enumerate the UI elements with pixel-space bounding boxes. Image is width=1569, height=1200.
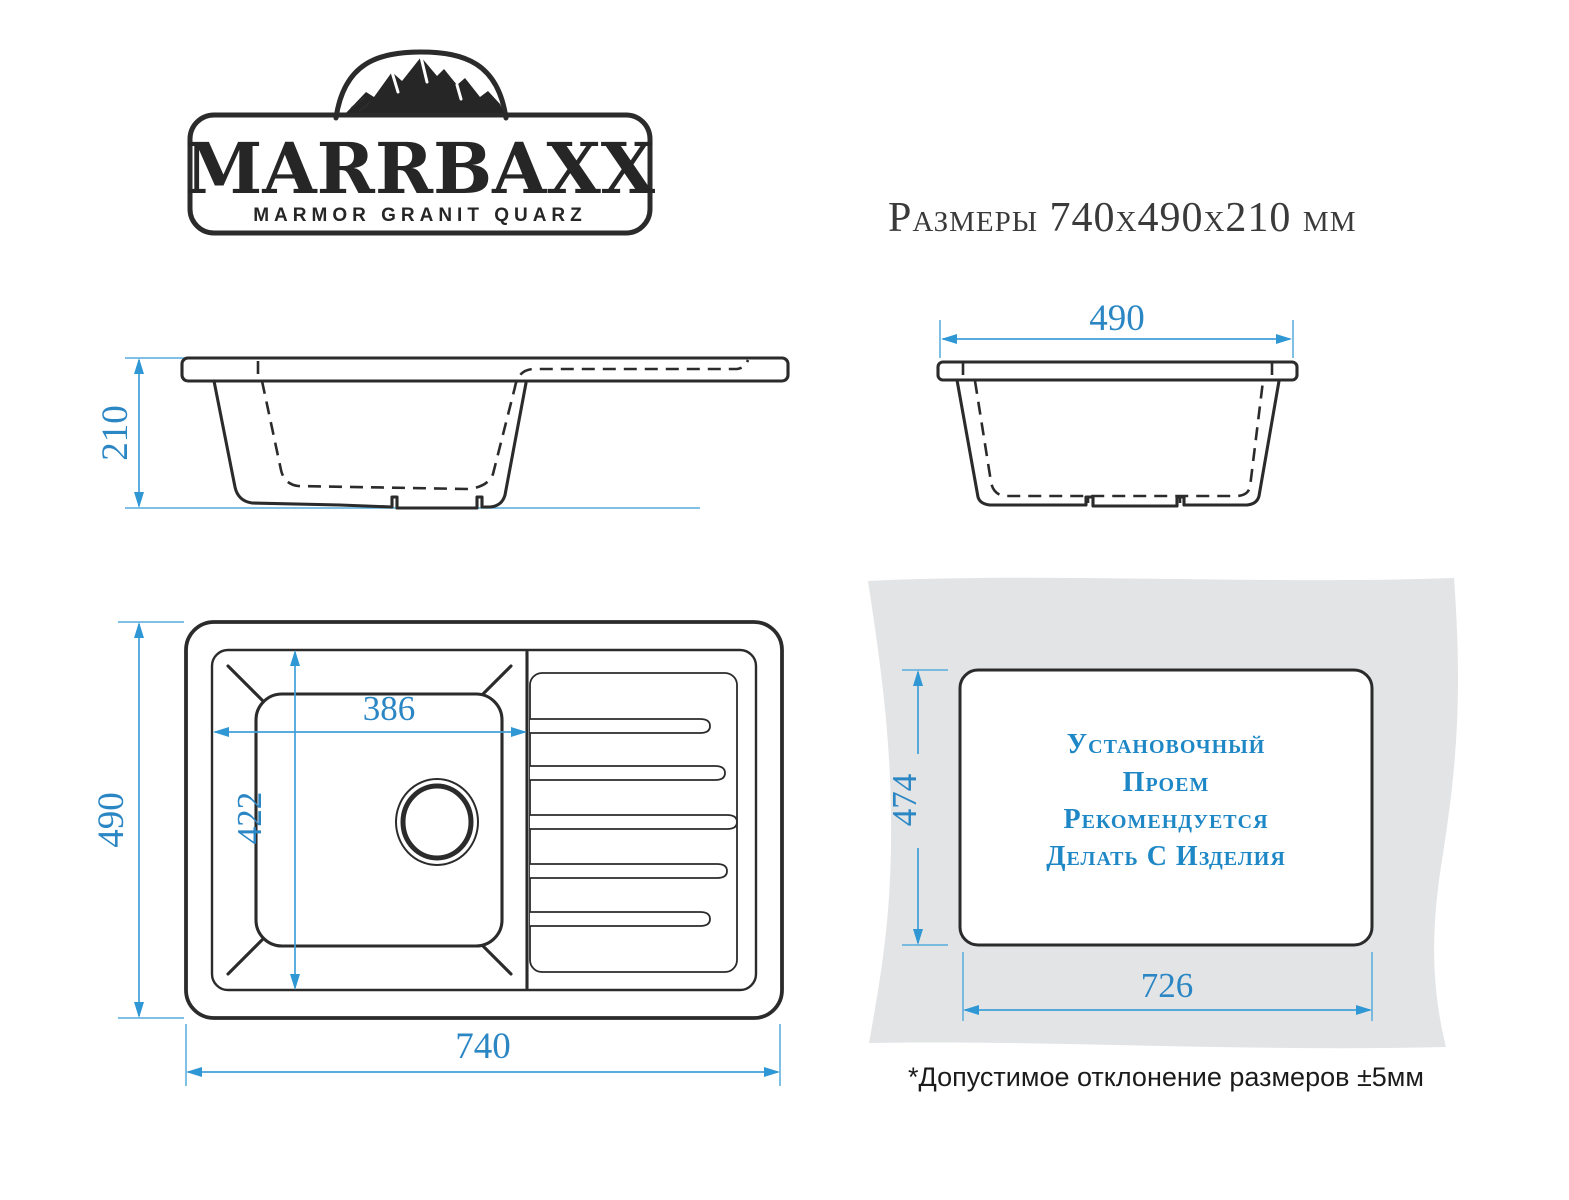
dimension-value-bowl-depth: 422 xyxy=(230,792,269,845)
brand-logo: MARRBAXX MARMOR GRANIT QUARZ xyxy=(185,52,656,233)
arrow-up-icon xyxy=(134,622,144,638)
arrow-left-icon xyxy=(941,334,957,344)
top-view: 490 740 386 422 xyxy=(91,622,782,1086)
arrow-right-icon xyxy=(1276,334,1292,344)
end-section-view: 490 xyxy=(938,298,1297,506)
dimension-value-cutout-height: 474 xyxy=(885,774,924,827)
bowl-profile-inner-dashed xyxy=(963,362,1272,503)
sink-rim-profile xyxy=(938,362,1297,380)
drainboard-groove xyxy=(530,864,727,878)
dimension-value-height: 210 xyxy=(95,405,136,461)
sink-dimensions-sheet: MARRBAXX MARMOR GRANIT QUARZ Размеры 740… xyxy=(0,0,1569,1200)
technical-drawing-canvas: MARRBAXX MARMOR GRANIT QUARZ Размеры 740… xyxy=(0,0,1569,1200)
dimension-value-length: 740 xyxy=(455,1026,511,1067)
tolerance-footnote: *Допустимое отклонение размеров ±5мм xyxy=(908,1062,1424,1092)
arrow-left-icon xyxy=(186,1067,202,1077)
brand-name: MARRBAXX xyxy=(185,127,656,210)
drainboard-groove xyxy=(530,766,725,780)
cutout-note-line2: Проем xyxy=(1123,767,1210,798)
cutout-note-line1: Установочный xyxy=(1067,729,1266,760)
dimension-value-bowl-width: 386 xyxy=(363,689,416,728)
cutout-note-line4: Делать С Изделия xyxy=(1046,841,1286,872)
drainboard-groove xyxy=(530,719,710,733)
arrow-up-icon xyxy=(134,358,144,374)
page-title: Размеры 740x490x210 мм xyxy=(888,195,1356,241)
bowl-profile-outline xyxy=(957,380,1279,506)
drainboard-groove xyxy=(530,912,710,926)
brand-tagline: MARMOR GRANIT QUARZ xyxy=(253,205,587,226)
dimension-value-width: 490 xyxy=(1089,298,1145,339)
cutout-diagram: Установочный Проем Рекомендуется Делать … xyxy=(868,578,1458,1049)
bowl-profile-outline xyxy=(214,381,526,508)
arrow-right-icon xyxy=(764,1067,780,1077)
dimension-value-cutout-width: 726 xyxy=(1141,966,1194,1005)
front-section-view: 210 xyxy=(95,358,788,508)
drain-hole xyxy=(403,786,471,858)
arrow-down-icon xyxy=(134,492,144,508)
arrow-down-icon xyxy=(134,1002,144,1018)
drainboard-groove xyxy=(530,815,737,829)
dimension-value-depth: 490 xyxy=(91,792,132,848)
cutout-note-line3: Рекомендуется xyxy=(1063,804,1268,835)
